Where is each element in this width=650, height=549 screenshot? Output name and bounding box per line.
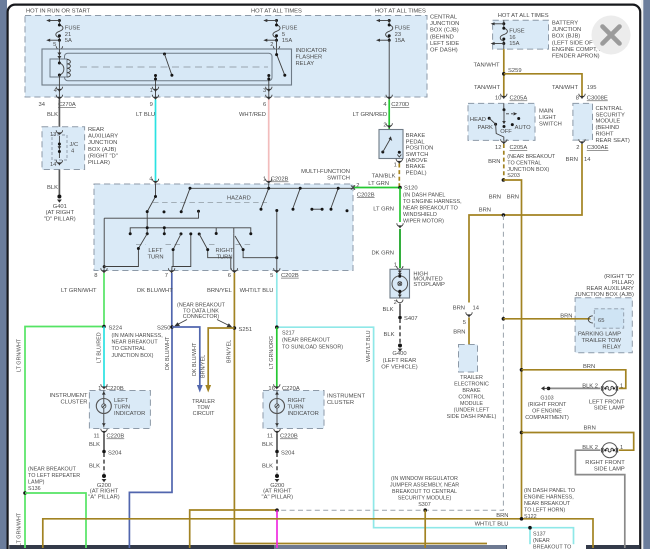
svg-text:TURN: TURN [288, 405, 304, 411]
svg-text:TO SUNLOAD SENSOR): TO SUNLOAD SENSOR) [282, 344, 343, 350]
svg-text:SIDE DASH PANEL): SIDE DASH PANEL) [447, 414, 497, 420]
svg-text:S251: S251 [239, 327, 253, 333]
svg-text:S217: S217 [282, 330, 295, 336]
svg-text:BRN/YEL: BRN/YEL [207, 288, 233, 294]
svg-text:BLK: BLK [89, 442, 100, 448]
svg-text:23: 23 [395, 32, 401, 38]
svg-text:5: 5 [463, 320, 466, 326]
svg-text:DK GRN: DK GRN [371, 251, 394, 257]
svg-text:INDICATOR: INDICATOR [288, 411, 319, 417]
svg-text:BRN: BRN [566, 157, 578, 163]
svg-text:2: 2 [394, 300, 397, 306]
svg-text:RIGHT: RIGHT [215, 248, 233, 254]
svg-text:S204: S204 [281, 451, 295, 457]
svg-text:11: 11 [267, 434, 273, 440]
svg-text:FLASHER: FLASHER [296, 54, 323, 60]
svg-text:HEAD: HEAD [470, 117, 486, 123]
svg-text:1: 1 [620, 445, 623, 451]
svg-text:COMPARTMENT): COMPARTMENT) [525, 415, 569, 421]
svg-text:HOT AT ALL TIMES: HOT AT ALL TIMES [498, 13, 549, 19]
svg-text:FUSE: FUSE [65, 26, 81, 32]
svg-text:DK BLU/WHT: DK BLU/WHT [137, 288, 173, 294]
svg-text:S307: S307 [418, 502, 431, 508]
svg-text:HAZARD: HAZARD [227, 196, 251, 202]
svg-text:C205A: C205A [510, 145, 528, 151]
svg-text:FUSE: FUSE [509, 29, 525, 35]
svg-text:INDICATOR: INDICATOR [114, 411, 145, 417]
svg-text:1: 1 [150, 88, 153, 94]
svg-text:14: 14 [50, 162, 57, 168]
svg-text:BRN/YEL: BRN/YEL [227, 340, 233, 363]
svg-text:14: 14 [473, 306, 480, 312]
svg-text:DK BLU/WHT: DK BLU/WHT [165, 336, 171, 370]
svg-text:(NEAR: (NEAR [533, 538, 550, 544]
svg-text:65: 65 [598, 318, 604, 324]
svg-text:LT GRN: LT GRN [368, 181, 389, 187]
svg-text:LT GRN/WHT: LT GRN/WHT [17, 512, 23, 546]
svg-text:TRAILER: TRAILER [460, 375, 483, 381]
svg-text:6: 6 [228, 273, 231, 279]
svg-text:11: 11 [93, 434, 99, 440]
svg-text:21: 21 [65, 32, 71, 38]
svg-text:7: 7 [165, 273, 168, 279]
svg-text:S259: S259 [508, 68, 522, 74]
svg-text:TURN: TURN [147, 255, 163, 261]
svg-text:PARK: PARK [478, 125, 493, 131]
svg-text:HOT AT ALL TIMES: HOT AT ALL TIMES [375, 9, 426, 15]
svg-text:TO LEFT REPEATER: TO LEFT REPEATER [28, 473, 80, 479]
svg-text:5: 5 [282, 32, 285, 38]
svg-text:JUNCTION BOX (AJB): JUNCTION BOX (AJB) [575, 292, 634, 298]
svg-text:MAIN: MAIN [539, 109, 554, 115]
svg-text:ENGINE HARNESS,: ENGINE HARNESS, [524, 494, 574, 500]
svg-text:195: 195 [587, 85, 597, 91]
svg-text:ELECTRONIC: ELECTRONIC [454, 382, 489, 388]
svg-text:TAN/WHT: TAN/WHT [474, 63, 500, 69]
svg-text:CIRCUIT: CIRCUIT [193, 411, 216, 417]
svg-text:LEFT FRONT: LEFT FRONT [589, 399, 625, 405]
svg-text:OF VEHICLE): OF VEHICLE) [381, 364, 417, 370]
svg-text:10: 10 [495, 96, 501, 102]
svg-text:G400: G400 [392, 351, 406, 357]
svg-text:SECURITY MODULE): SECURITY MODULE) [398, 495, 452, 501]
svg-text:FUSE: FUSE [395, 26, 411, 32]
svg-text:C202B: C202B [281, 273, 299, 279]
svg-text:5: 5 [270, 273, 273, 279]
svg-text:PARKING LAMP: PARKING LAMP [578, 332, 621, 338]
svg-text:S137: S137 [533, 532, 546, 538]
svg-text:BREAKOUT TO CENTRAL: BREAKOUT TO CENTRAL [392, 489, 457, 495]
svg-text:LT BLU: LT BLU [136, 112, 155, 118]
svg-text:S224: S224 [109, 326, 123, 332]
svg-text:BRN: BRN [453, 306, 465, 312]
svg-text:1: 1 [394, 163, 397, 169]
svg-text:BRN: BRN [507, 195, 519, 201]
svg-text:(UNDER LEFT: (UNDER LEFT [454, 408, 490, 414]
svg-text:(NEAR BREAKOUT: (NEAR BREAKOUT [282, 337, 331, 343]
svg-text:BREAKOUT TO: BREAKOUT TO [533, 545, 571, 549]
svg-text:(RIGHT FRONT: (RIGHT FRONT [528, 402, 567, 408]
svg-text:WHT/RED: WHT/RED [239, 112, 266, 118]
svg-text:S203: S203 [507, 173, 520, 179]
svg-text:TAN/BLK: TAN/BLK [372, 174, 396, 180]
svg-text:CONNECTOR): CONNECTOR) [183, 314, 220, 320]
svg-text:C300AE: C300AE [587, 145, 609, 151]
svg-text:15A: 15A [509, 41, 519, 47]
svg-text:15A: 15A [282, 38, 292, 44]
svg-text:BLK: BLK [47, 185, 58, 191]
svg-text:MODULE: MODULE [460, 401, 483, 407]
svg-text:SWITCH: SWITCH [327, 176, 350, 182]
svg-text:2: 2 [576, 145, 579, 151]
svg-text:AUTO: AUTO [515, 125, 531, 131]
svg-text:WHT/LT BLU: WHT/LT BLU [475, 522, 509, 528]
svg-text:TO CENTRAL: TO CENTRAL [507, 161, 541, 167]
svg-text:LT GRN: LT GRN [373, 207, 394, 213]
svg-text:OFF: OFF [500, 129, 512, 135]
svg-text:C220B: C220B [107, 434, 125, 440]
svg-text:LAMP): LAMP) [28, 480, 45, 486]
svg-text:15A: 15A [395, 38, 405, 44]
svg-text:C202B: C202B [357, 192, 375, 198]
svg-text:TRAILER TOW: TRAILER TOW [582, 338, 622, 344]
svg-text:5A: 5A [65, 38, 72, 44]
svg-text:2: 2 [356, 183, 359, 189]
svg-text:TAN/WHT: TAN/WHT [552, 85, 578, 91]
svg-text:JUMPER ASSEMBLY, NEAR: JUMPER ASSEMBLY, NEAR [390, 482, 459, 488]
svg-text:WHT/LT BLU: WHT/LT BLU [366, 330, 372, 362]
svg-text:CLUSTER: CLUSTER [327, 400, 354, 406]
svg-text:BRN: BRN [453, 330, 465, 336]
svg-text:"A" PILLAR): "A" PILLAR) [262, 494, 294, 500]
svg-text:BRN: BRN [560, 314, 572, 320]
svg-text:1: 1 [620, 383, 623, 389]
svg-text:SIDE LAMP: SIDE LAMP [594, 406, 625, 412]
svg-text:S120: S120 [404, 186, 418, 192]
svg-text:C3008E: C3008E [587, 96, 608, 102]
svg-text:STOPLAMP: STOPLAMP [413, 282, 445, 288]
svg-text:SWITCH: SWITCH [539, 122, 562, 128]
svg-text:HOT IN RUN OR START: HOT IN RUN OR START [26, 9, 91, 15]
svg-text:SIDE LAMP: SIDE LAMP [594, 466, 625, 472]
svg-text:RIGHT FRONT: RIGHT FRONT [585, 460, 625, 466]
svg-text:BLK: BLK [89, 464, 100, 470]
svg-text:BRN: BRN [583, 364, 595, 370]
svg-text:S250: S250 [157, 326, 171, 332]
svg-text:BLK: BLK [384, 332, 395, 338]
svg-text:3: 3 [263, 88, 266, 94]
svg-text:OF ENGINE: OF ENGINE [532, 409, 562, 415]
svg-text:16: 16 [509, 35, 515, 41]
svg-text:C202B: C202B [271, 177, 289, 183]
svg-text:DK BLU/WHT: DK BLU/WHT [192, 342, 198, 376]
svg-text:(IN WINDOW REGULATOR: (IN WINDOW REGULATOR [391, 476, 458, 482]
svg-text:HOT AT ALL TIMES: HOT AT ALL TIMES [251, 9, 302, 15]
svg-text:S122: S122 [524, 514, 537, 520]
svg-text:FUSE: FUSE [282, 26, 298, 32]
svg-text:LIGHT: LIGHT [539, 115, 557, 121]
svg-text:9: 9 [150, 102, 153, 108]
svg-text:RIGHT: RIGHT [288, 398, 306, 404]
svg-text:LT GRN/RED: LT GRN/RED [353, 112, 388, 118]
svg-text:BLK: BLK [262, 464, 273, 470]
svg-text:INSTRUMENT: INSTRUMENT [327, 393, 365, 399]
svg-text:BRAKE: BRAKE [462, 388, 481, 394]
svg-text:S407: S407 [404, 316, 418, 322]
svg-text:TURN: TURN [114, 405, 130, 411]
svg-text:BRN: BRN [496, 513, 508, 519]
svg-text:BRN: BRN [479, 208, 491, 214]
svg-text:NEAR BREAKOUT: NEAR BREAKOUT [524, 501, 571, 507]
svg-text:G103: G103 [540, 396, 553, 402]
svg-text:(NEAR BREAKOUT: (NEAR BREAKOUT [507, 154, 556, 160]
svg-text:LEFT: LEFT [114, 398, 129, 404]
svg-text:14: 14 [584, 157, 591, 163]
svg-text:BLK: BLK [383, 307, 394, 313]
svg-text:C205A: C205A [510, 96, 528, 102]
svg-text:(LEFT REAR: (LEFT REAR [383, 358, 417, 364]
svg-text:CONTROL: CONTROL [458, 395, 484, 401]
svg-text:8: 8 [94, 273, 97, 279]
svg-text:(NEAR BREAKOUT: (NEAR BREAKOUT [28, 467, 77, 473]
svg-text:BRN/YEL: BRN/YEL [201, 355, 207, 378]
svg-text:RELAY: RELAY [602, 345, 621, 351]
svg-text:INDICATOR: INDICATOR [296, 48, 327, 54]
svg-text:WHT/LT BLU: WHT/LT BLU [240, 288, 274, 294]
svg-text:LEFT: LEFT [148, 248, 163, 254]
svg-text:S136: S136 [28, 486, 41, 492]
svg-text:BLK: BLK [262, 442, 273, 448]
svg-text:LT GRN/WHT: LT GRN/WHT [61, 288, 97, 294]
svg-text:LT GRN/WHT: LT GRN/WHT [17, 338, 23, 372]
svg-text:S204: S204 [108, 451, 122, 457]
svg-text:TAN/WHT: TAN/WHT [474, 85, 500, 91]
svg-text:INSTRUMENT: INSTRUMENT [50, 393, 88, 399]
svg-text:LT BLU/RED: LT BLU/RED [97, 332, 103, 363]
svg-text:LT GRN/ORG: LT GRN/ORG [269, 336, 275, 369]
svg-text:"A" PILLAR): "A" PILLAR) [88, 494, 120, 500]
svg-text:6: 6 [263, 102, 266, 108]
svg-text:C270D: C270D [391, 102, 409, 108]
svg-text:C220B: C220B [280, 434, 298, 440]
svg-text:C270A: C270A [58, 102, 76, 108]
svg-text:CLUSTER: CLUSTER [60, 400, 87, 406]
svg-text:BRN: BRN [488, 159, 500, 165]
svg-text:12: 12 [495, 145, 501, 151]
svg-text:MULTI-FUNCTION: MULTI-FUNCTION [301, 169, 350, 175]
svg-text:J/C: J/C [70, 142, 79, 148]
svg-text:RELAY: RELAY [296, 61, 315, 67]
svg-text:BRN: BRN [489, 195, 501, 201]
svg-text:8: 8 [576, 96, 579, 102]
svg-text:BLK: BLK [47, 112, 58, 118]
svg-text:TO LEFT HORN): TO LEFT HORN) [524, 507, 565, 513]
svg-text:34: 34 [39, 102, 46, 108]
svg-text:(IN DASH PANEL TO: (IN DASH PANEL TO [524, 488, 575, 494]
svg-text:BRN: BRN [584, 426, 596, 432]
